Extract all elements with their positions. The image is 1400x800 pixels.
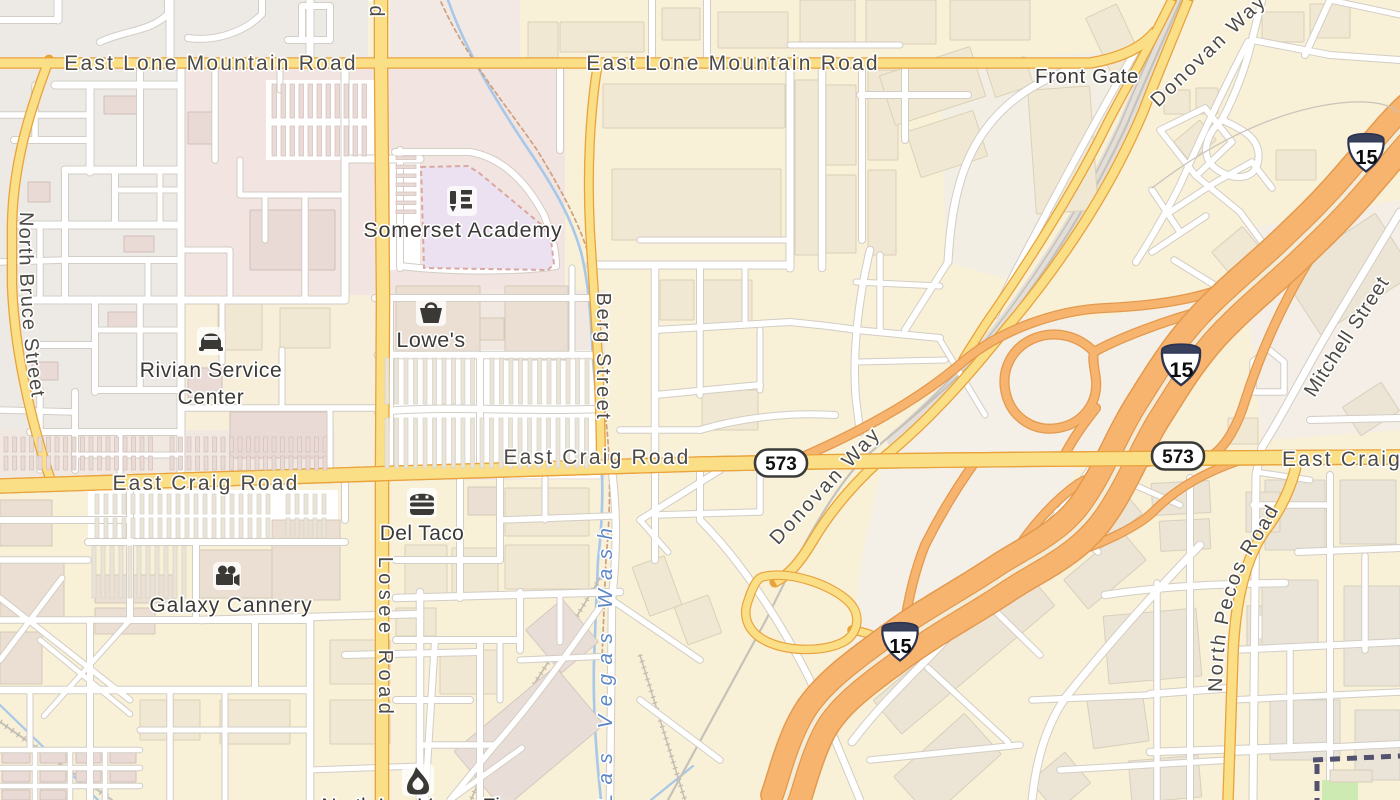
svg-text:East Lone Mountain Road: East Lone Mountain Road [586,52,879,75]
svg-text:573: 573 [1162,447,1194,468]
svg-text:East Craig Road: East Craig Road [1282,448,1400,471]
svg-text:Rivian Service: Rivian Service [140,359,283,382]
svg-text:Las Vegas Wash: Las Vegas Wash [594,519,617,800]
svg-text:573: 573 [765,454,797,475]
svg-text:East Craig Road: East Craig Road [112,472,299,495]
svg-text:East Lone Mountain Road: East Lone Mountain Road [64,52,357,75]
svg-text:Front Gate: Front Gate [1035,65,1139,88]
svg-text:Galaxy Cannery: Galaxy Cannery [149,594,312,617]
svg-text:Somerset Academy: Somerset Academy [363,218,562,242]
svg-text:Del Taco: Del Taco [380,522,465,545]
svg-text:East Craig Road: East Craig Road [503,446,690,469]
svg-text:15: 15 [889,636,911,658]
svg-text:Center: Center [178,386,245,409]
svg-text:15: 15 [1170,357,1194,382]
svg-text:Losee Road: Losee Road [374,557,396,720]
svg-text:Lowe's: Lowe's [396,328,465,352]
svg-text:15: 15 [1355,147,1377,169]
svg-text:Losee Road: Losee Road [365,0,387,22]
svg-text:Berg Street: Berg Street [592,293,614,422]
